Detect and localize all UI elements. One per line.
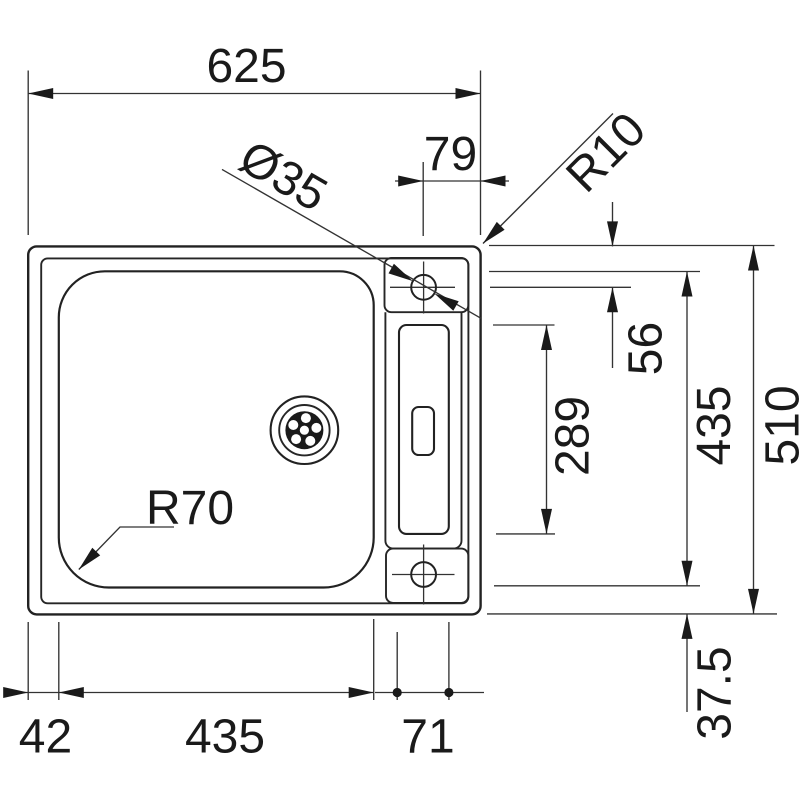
svg-text:56: 56 — [619, 322, 672, 375]
svg-text:435: 435 — [688, 385, 741, 465]
svg-text:79: 79 — [424, 128, 477, 181]
svg-text:37.5: 37.5 — [688, 646, 741, 739]
svg-text:42: 42 — [19, 710, 72, 763]
svg-text:625: 625 — [206, 40, 286, 93]
svg-text:510: 510 — [756, 385, 800, 465]
svg-text:71: 71 — [401, 710, 454, 763]
svg-text:289: 289 — [546, 396, 599, 476]
svg-text:435: 435 — [185, 710, 265, 763]
svg-text:R70: R70 — [146, 482, 234, 535]
